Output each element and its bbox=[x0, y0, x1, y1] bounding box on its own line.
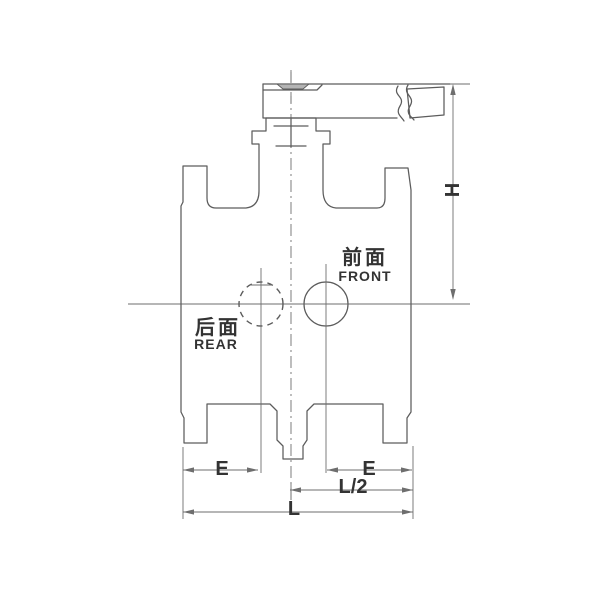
valve-drawing-canvas: H E E L/2 L 前面 FRONT 后面 REAR bbox=[0, 0, 600, 600]
dim-E-left-label: E bbox=[215, 458, 228, 480]
dim-H-arrow-up bbox=[450, 84, 455, 95]
dim-L-arrow-right bbox=[402, 509, 413, 514]
front-label-en: FRONT bbox=[338, 268, 391, 284]
dim-L-arrow-left bbox=[183, 509, 194, 514]
handle-break-line-left bbox=[396, 86, 404, 121]
dim-E-left-arrow-right bbox=[247, 467, 258, 472]
dim-L-label: L bbox=[288, 498, 300, 520]
dim-H-arrow-down bbox=[450, 289, 455, 300]
front-label-cn: 前面 bbox=[342, 245, 388, 269]
handle-end-piece bbox=[407, 87, 444, 118]
stem-symbol bbox=[274, 119, 308, 147]
dim-L-half-label: L/2 bbox=[339, 476, 368, 498]
dim-L-half-arrow-left bbox=[290, 487, 301, 492]
handle-grip-plate bbox=[277, 84, 309, 89]
dim-E-right-arrow-left bbox=[327, 467, 338, 472]
dim-L-half-arrow-right bbox=[402, 487, 413, 492]
dim-E-right-arrow-right bbox=[401, 467, 412, 472]
valve-body-outline bbox=[181, 118, 411, 459]
rear-label-en: REAR bbox=[194, 336, 238, 352]
dim-E-left-arrow-left bbox=[183, 467, 194, 472]
dim-H-label: H bbox=[442, 183, 464, 197]
valve-technical-drawing-page: H E E L/2 L 前面 FRONT 后面 REAR bbox=[0, 0, 600, 600]
